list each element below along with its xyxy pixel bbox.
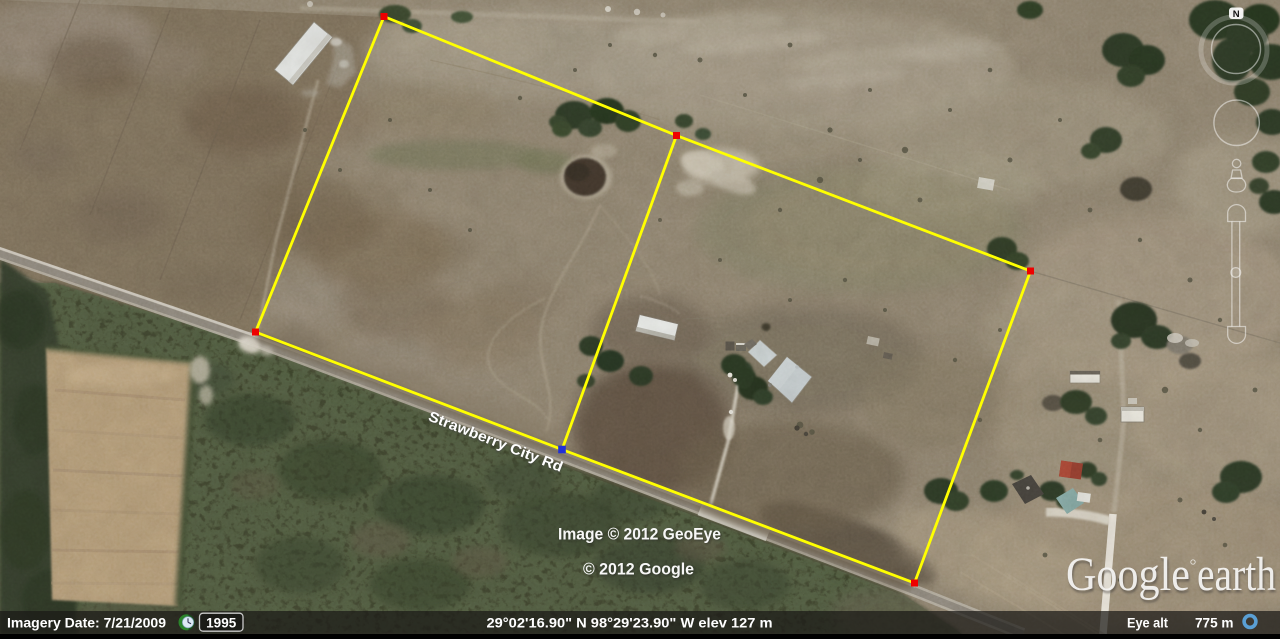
svg-text:N: N: [1233, 9, 1240, 20]
svg-text:Image © 2012 GeoEye: Image © 2012 GeoEye: [558, 525, 721, 544]
svg-text:Google: Google: [1066, 548, 1190, 601]
svg-text:© 2012 Google: © 2012 Google: [583, 560, 694, 579]
svg-text:Eye alt: Eye alt: [1127, 616, 1168, 631]
svg-text:earth: earth: [1197, 548, 1276, 601]
svg-text:29°02'16.90" N 98°29'23.90" W: 29°02'16.90" N 98°29'23.90" W elev 127 m: [487, 616, 773, 631]
svg-text:1995: 1995: [206, 616, 237, 631]
svg-text:Imagery Date: 7/21/2009: Imagery Date: 7/21/2009: [7, 616, 166, 631]
svg-text:775 m: 775 m: [1195, 616, 1234, 631]
